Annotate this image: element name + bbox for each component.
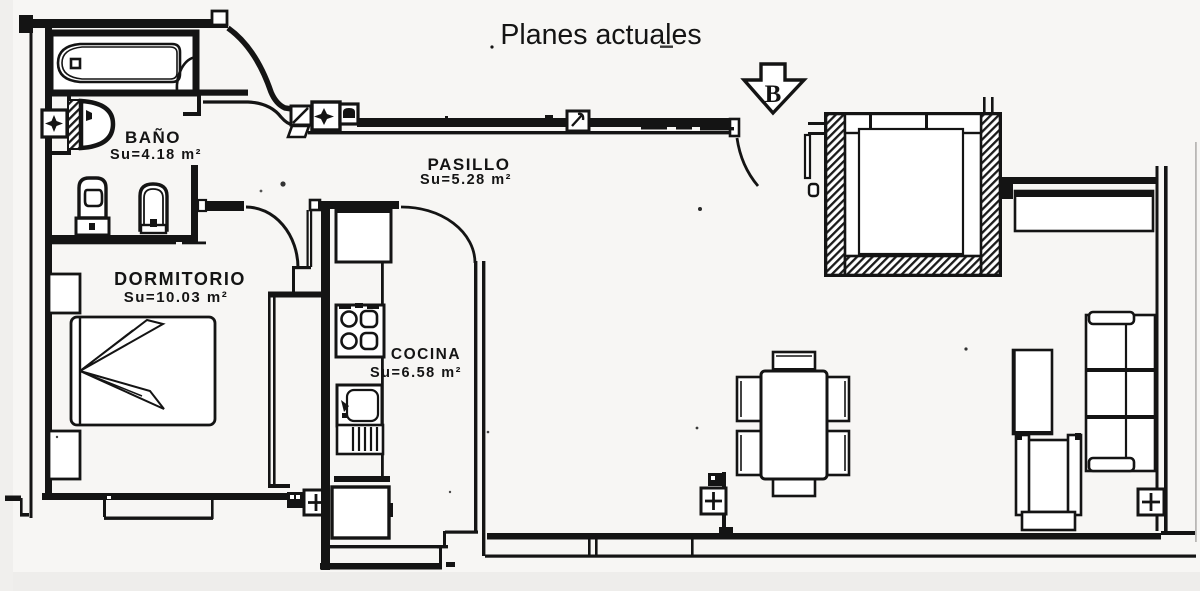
svg-text:Su=4.18 m²: Su=4.18 m² [110, 147, 202, 163]
svg-text:DORMITORIO: DORMITORIO [114, 269, 246, 289]
svg-text:COCINA: COCINA [391, 346, 461, 363]
svg-text:Su=10.03 m²: Su=10.03 m² [124, 289, 228, 306]
svg-text:B: B [765, 81, 782, 108]
svg-text:Su=5.28 m²: Su=5.28 m² [420, 172, 512, 188]
svg-text:Su=6.58 m²: Su=6.58 m² [370, 365, 462, 381]
svg-text:BAÑO: BAÑO [125, 127, 181, 147]
